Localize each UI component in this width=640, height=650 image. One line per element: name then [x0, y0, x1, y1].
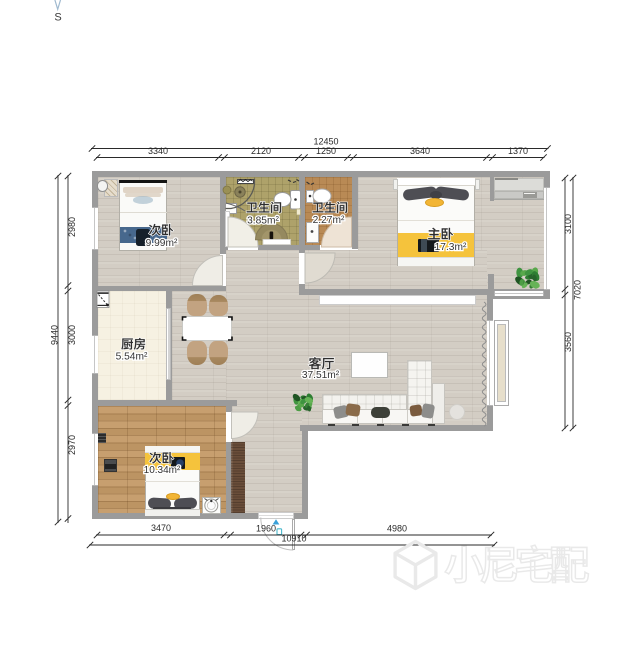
svg-text:2120: 2120 — [251, 146, 271, 156]
svg-text:3.85m²: 3.85m² — [247, 216, 279, 227]
svg-text:3560: 3560 — [563, 332, 573, 352]
svg-text:2980: 2980 — [67, 217, 77, 237]
svg-text:10.34m²: 10.34m² — [144, 465, 181, 476]
svg-text:5.54m²: 5.54m² — [116, 352, 148, 363]
svg-text:3340: 3340 — [148, 146, 168, 156]
svg-text:1960: 1960 — [256, 524, 276, 534]
svg-text:3100: 3100 — [563, 214, 573, 234]
svg-text:1370: 1370 — [508, 146, 528, 156]
svg-text:9440: 9440 — [50, 325, 60, 345]
svg-text:9.99m²: 9.99m² — [146, 238, 178, 249]
svg-text:2.27m²: 2.27m² — [313, 215, 345, 226]
svg-text:7020: 7020 — [573, 280, 583, 300]
svg-text:S: S — [54, 12, 61, 24]
svg-text:3470: 3470 — [151, 523, 171, 533]
svg-text:3000: 3000 — [67, 325, 77, 345]
svg-text:4980: 4980 — [387, 524, 407, 534]
svg-text:17.3m²: 17.3m² — [435, 242, 467, 253]
svg-text:2970: 2970 — [67, 435, 77, 455]
svg-text:10910: 10910 — [281, 534, 306, 544]
svg-text:1250: 1250 — [316, 146, 336, 156]
svg-text:37.51m²: 37.51m² — [302, 370, 340, 381]
svg-text:3640: 3640 — [410, 146, 430, 156]
svg-text:12450: 12450 — [313, 137, 338, 147]
